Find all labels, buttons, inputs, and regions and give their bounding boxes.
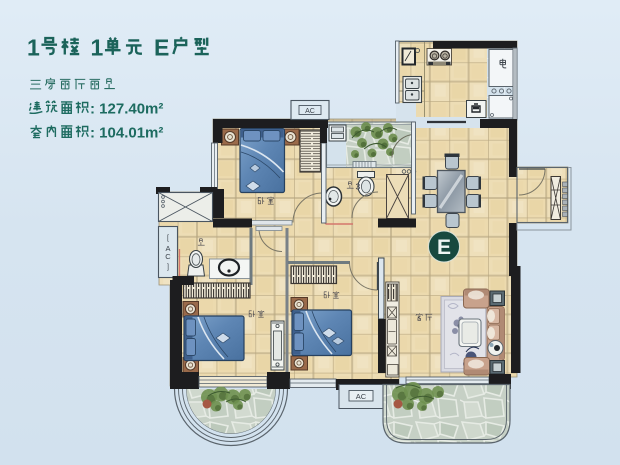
svg-text:]: ] [167, 264, 169, 271]
svg-text:1: 1 [27, 35, 40, 61]
svg-text:C: C [165, 252, 171, 261]
svg-text:[: [ [167, 235, 169, 242]
svg-text:: 127.40m²: : 127.40m² [90, 101, 163, 118]
svg-text:E: E [437, 236, 451, 259]
svg-text:1: 1 [91, 35, 104, 61]
svg-text:E: E [154, 35, 169, 61]
svg-text:: 104.01m²: : 104.01m² [90, 125, 163, 142]
svg-text:AC: AC [356, 392, 367, 401]
svg-text:3: 3 [356, 182, 361, 192]
svg-text:AC: AC [305, 108, 315, 115]
